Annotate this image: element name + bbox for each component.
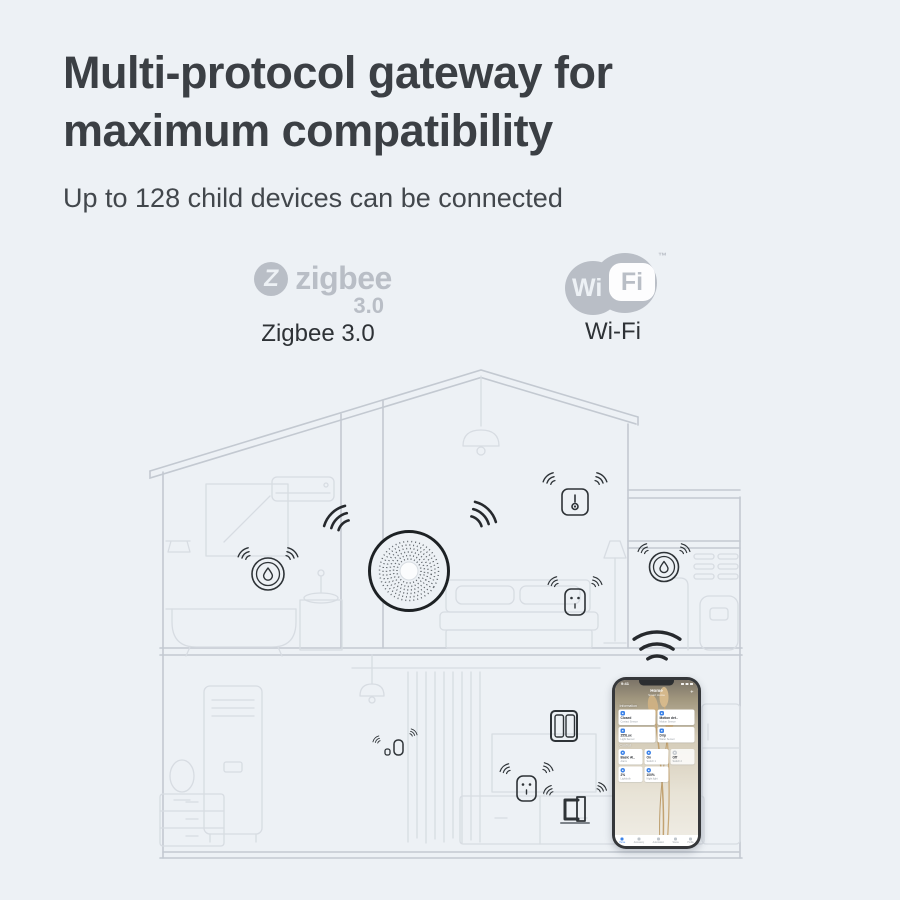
app-nav-bar: Home Accessory Automation Scene Profile	[615, 835, 698, 846]
add-icon: +	[690, 689, 693, 695]
light-sensor-icon	[621, 729, 626, 734]
lightbulb-icon	[621, 768, 626, 773]
water-sensor-icon	[660, 729, 665, 734]
water-leak-sensor-icon	[237, 546, 299, 590]
control-card: 2% Lightbulb	[619, 767, 643, 783]
section-control: Control	[620, 744, 695, 748]
smart-plug-2-icon	[499, 762, 554, 801]
status-icons	[681, 683, 693, 685]
contact-sensor-icon	[621, 711, 626, 716]
status-time: 9:41	[621, 682, 629, 687]
wireless-mini-switch-icon	[372, 728, 418, 755]
app-title: Home	[615, 688, 698, 693]
sensor-card: Drip Water Sensor	[658, 727, 695, 743]
switch-off-icon	[673, 751, 678, 756]
temperature-sensor-icon	[542, 471, 608, 515]
utility-room-furniture	[673, 554, 738, 650]
app-subtitle: Smart Home	[615, 694, 698, 697]
control-card: Basic Al.. Alarm	[619, 749, 643, 765]
wall-switch-icon	[551, 711, 577, 741]
sensor-card: Motion det.. Motion Sensor	[658, 710, 695, 726]
switch-on-icon	[647, 751, 652, 756]
nav-automation: Automation	[653, 838, 664, 844]
motion-sensor-icon	[660, 711, 665, 716]
house-illustration	[0, 0, 900, 900]
alarm-icon	[621, 751, 626, 756]
control-card: Off Switch 2	[671, 749, 695, 765]
nav-accessory: Accessory	[634, 838, 644, 844]
app-header: Home Smart Home +	[615, 688, 698, 697]
phone-screen: 9:41 Home Smart Home + Information Close…	[615, 680, 698, 846]
smartphone: 9:41 Home Smart Home + Information Close…	[612, 677, 701, 849]
nav-home: Home	[619, 838, 625, 844]
nav-profile: Profile	[687, 838, 693, 844]
bedroom-furniture	[440, 376, 626, 648]
curtain-controller-icon	[543, 782, 608, 823]
gateway-signal-waves	[321, 499, 498, 535]
phone-status-bar: 9:41	[615, 682, 698, 688]
nav-scene: Scene	[672, 838, 678, 844]
sensor-card: Closed Contact Sensor	[619, 710, 656, 726]
night-light-icon	[647, 768, 652, 773]
control-card: 100% Night light	[645, 767, 669, 783]
zigbee-gateway-hub-icon	[321, 499, 498, 612]
smart-plug-icon	[547, 576, 603, 615]
section-information: Information	[620, 705, 695, 709]
marketing-page: Multi-protocol gateway for maximum compa…	[0, 0, 900, 900]
app-body: Information Closed Contact Sensor Motion…	[619, 703, 695, 782]
control-card: On Switch 1	[645, 749, 669, 765]
sensor-card: 255Lux Light Sensor	[619, 727, 656, 743]
